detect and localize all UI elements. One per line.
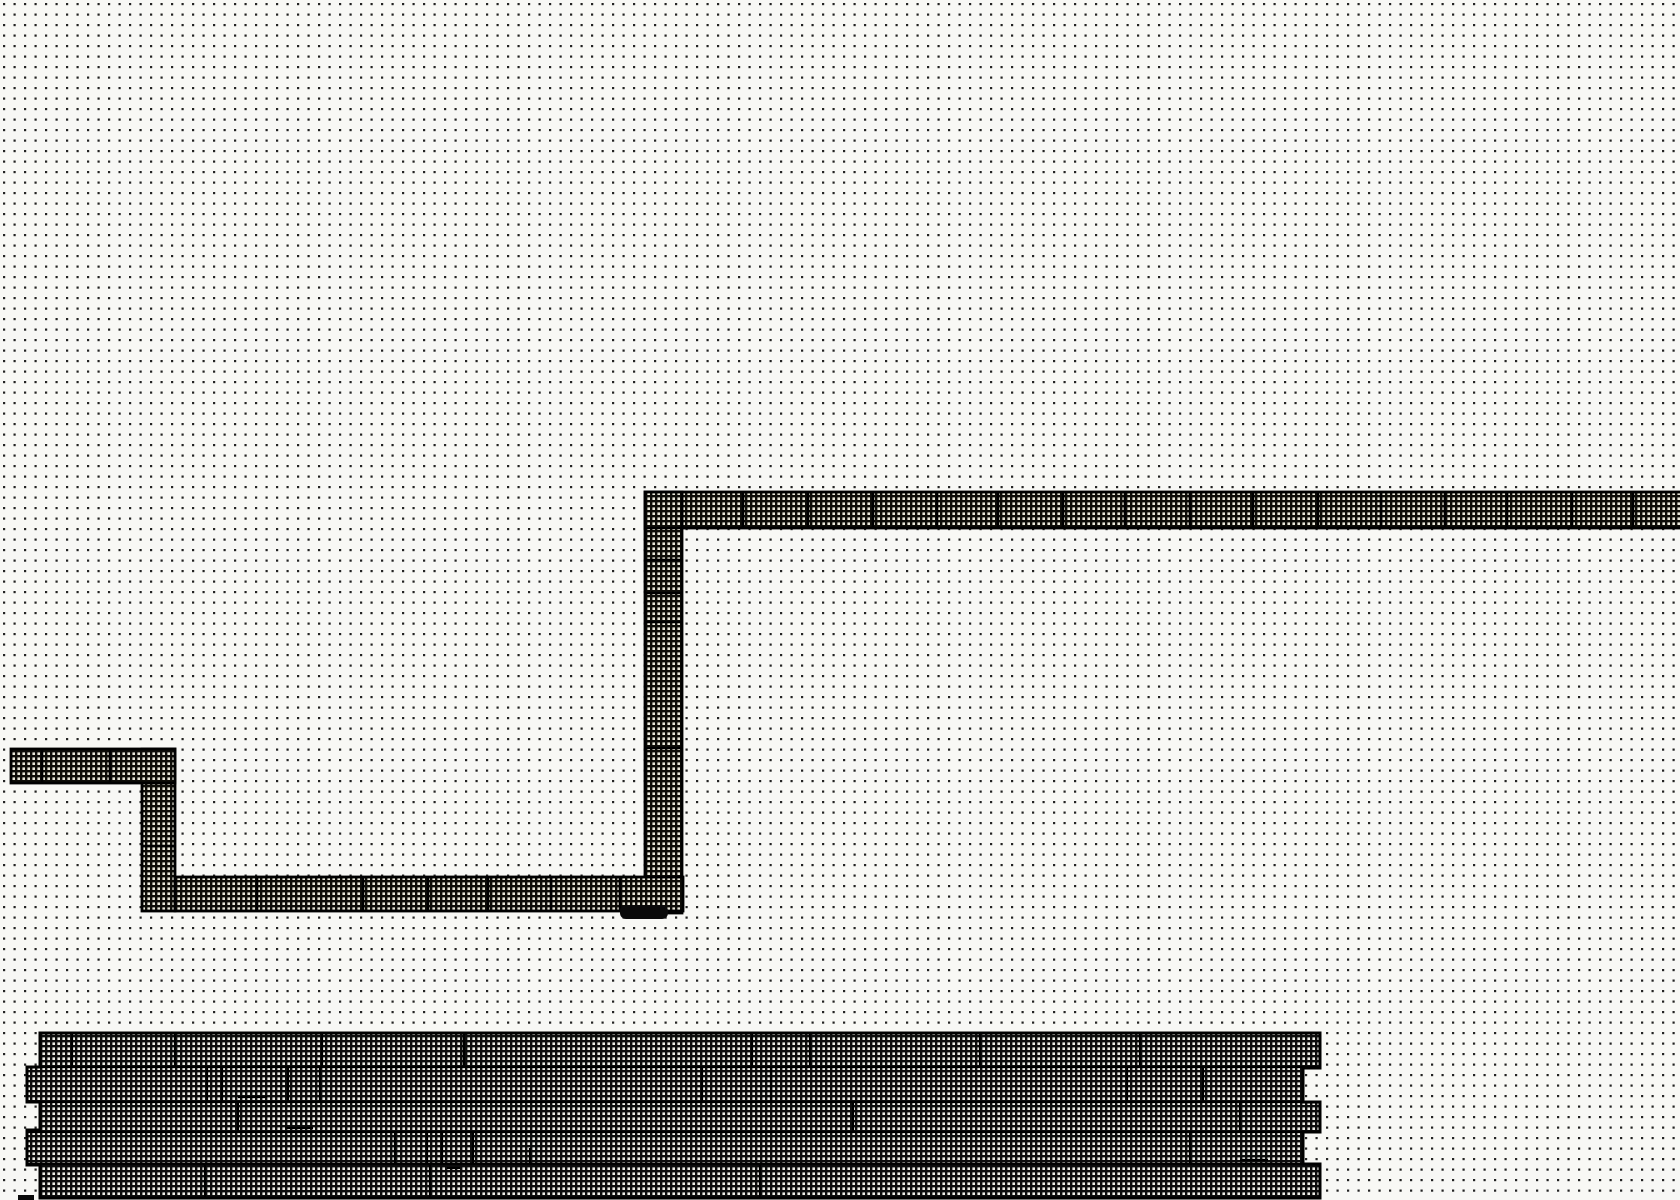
layout-editor-viewport	[0, 0, 1680, 1200]
wire-top-horizontal-bar-body[interactable]	[645, 492, 1680, 528]
hatched-slab[interactable]	[27, 1033, 1320, 1198]
wire-top-left-horizontal-bar-body[interactable]	[11, 749, 175, 783]
layout-canvas[interactable]	[0, 0, 1680, 1200]
wire-corner-bump[interactable]	[620, 905, 668, 919]
slab-outline[interactable]	[27, 1033, 1320, 1198]
wire-top-left-horizontal-bar[interactable]	[11, 749, 175, 783]
wire-right-vertical-bar-body[interactable]	[645, 492, 682, 913]
wire-top-horizontal-bar[interactable]	[645, 492, 1680, 528]
grid-dots	[0, 0, 1680, 1200]
edge-fragment	[18, 1195, 34, 1200]
wire-right-vertical-bar[interactable]	[645, 492, 682, 913]
wire-bottom-horizontal-bar[interactable]	[175, 877, 683, 911]
